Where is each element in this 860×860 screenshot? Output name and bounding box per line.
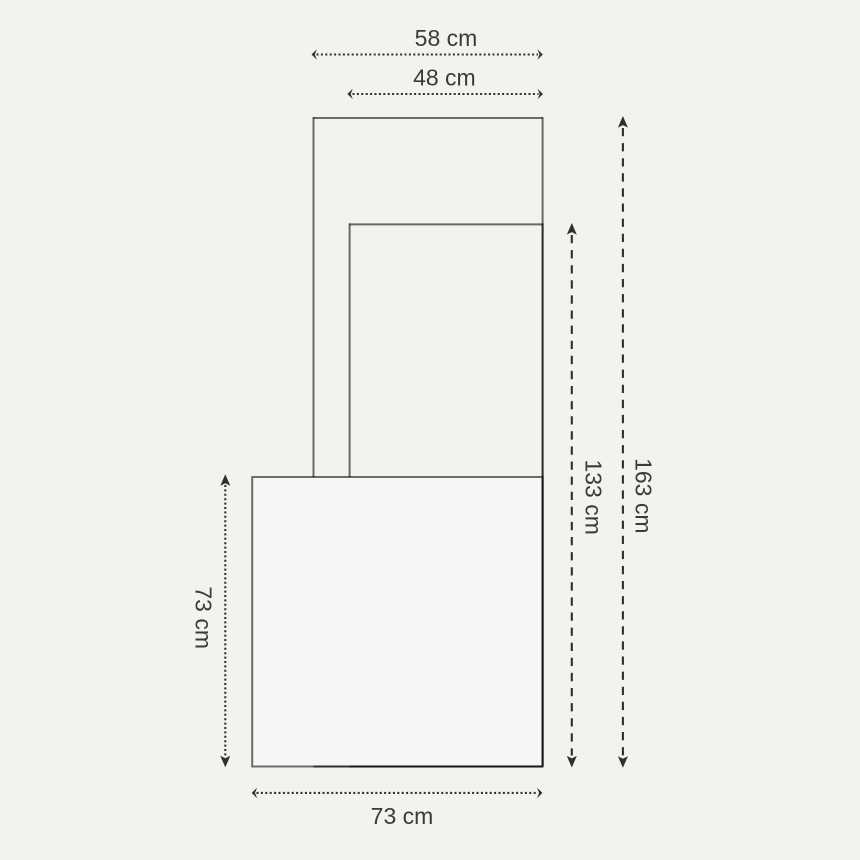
svg-text:48 cm: 48 cm — [413, 65, 476, 91]
svg-text:133 cm: 133 cm — [580, 459, 606, 534]
svg-text:73 cm: 73 cm — [371, 803, 434, 829]
svg-text:163 cm: 163 cm — [631, 458, 657, 533]
svg-text:58 cm: 58 cm — [415, 25, 478, 51]
svg-text:73 cm: 73 cm — [191, 586, 217, 649]
